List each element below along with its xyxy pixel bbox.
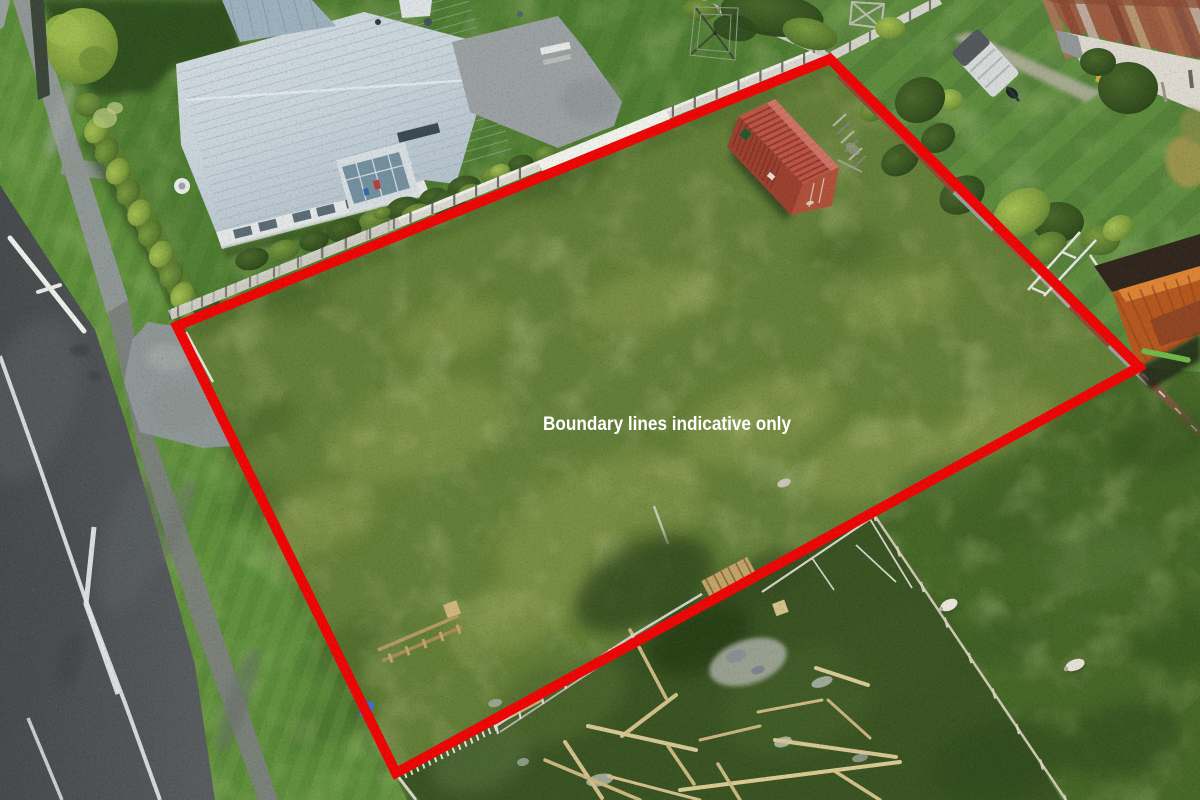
svg-text:Boundary lines indicative only: Boundary lines indicative only bbox=[543, 413, 791, 435]
